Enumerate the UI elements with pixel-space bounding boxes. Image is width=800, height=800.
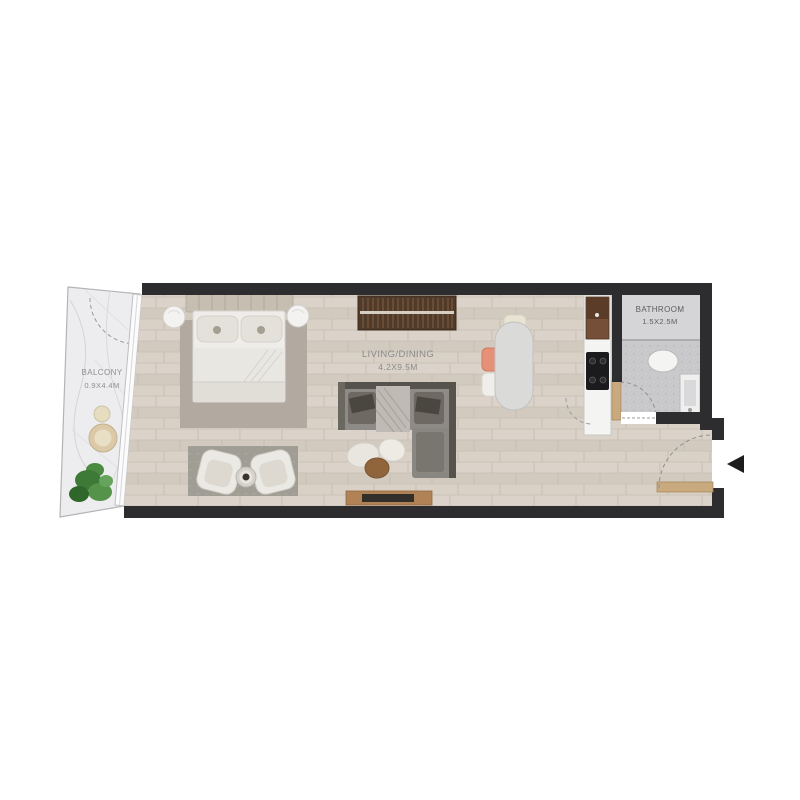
tv-console <box>346 491 432 505</box>
wall-bottom <box>124 506 724 518</box>
sofa-left-arm <box>338 382 345 430</box>
fridge <box>586 297 609 339</box>
sofa-throw <box>376 386 410 432</box>
chaise-cushion <box>416 432 444 472</box>
nightstand-left <box>163 306 185 328</box>
wall-entry-upper <box>712 430 724 440</box>
bathroom-label: BATHROOM <box>636 305 685 314</box>
wall-step <box>700 418 724 430</box>
living-dining-label: LIVING/DINING <box>362 349 434 360</box>
living-dining-dimensions: 4.2X9.5M <box>378 362 418 372</box>
entry-door-leaf <box>657 482 713 492</box>
tv <box>362 494 414 502</box>
toilet <box>648 350 678 372</box>
balcony-stool <box>94 406 110 422</box>
wardrobe-rail <box>360 311 454 314</box>
balcony-dimensions: 0.9X4.4M <box>84 381 119 390</box>
wall-top <box>142 283 712 295</box>
headboard <box>186 293 293 312</box>
sink <box>680 374 700 414</box>
wall-bathroom-left <box>612 295 622 382</box>
balcony-table-top <box>95 430 112 447</box>
wall-bathroom-bottom <box>656 412 700 424</box>
wardrobe <box>358 296 456 330</box>
cooktop <box>586 352 609 390</box>
bathroom-dimensions: 1.5X2.5M <box>642 317 677 326</box>
bathroom: BATHROOM 1.5X2.5M <box>612 295 700 424</box>
bed <box>193 311 285 402</box>
floor-plan-page: BALCONY 0.9X4.4M BATHROOM 1.5X2.5M <box>0 0 800 800</box>
coffee-table <box>236 467 256 487</box>
floor-plan-image: BALCONY 0.9X4.4M BATHROOM 1.5X2.5M <box>0 0 800 800</box>
lounge-area <box>188 446 298 496</box>
nightstand-right <box>287 305 309 327</box>
sofa-right-arm <box>449 382 456 478</box>
entry-arrow-icon <box>727 455 744 473</box>
pouf-brown <box>365 458 389 478</box>
bed-blanket <box>193 382 285 402</box>
balcony-label: BALCONY <box>81 368 122 377</box>
bathroom-door-leaf <box>612 380 621 420</box>
wall-bathroom-right <box>700 295 712 418</box>
dining-table <box>495 322 533 410</box>
